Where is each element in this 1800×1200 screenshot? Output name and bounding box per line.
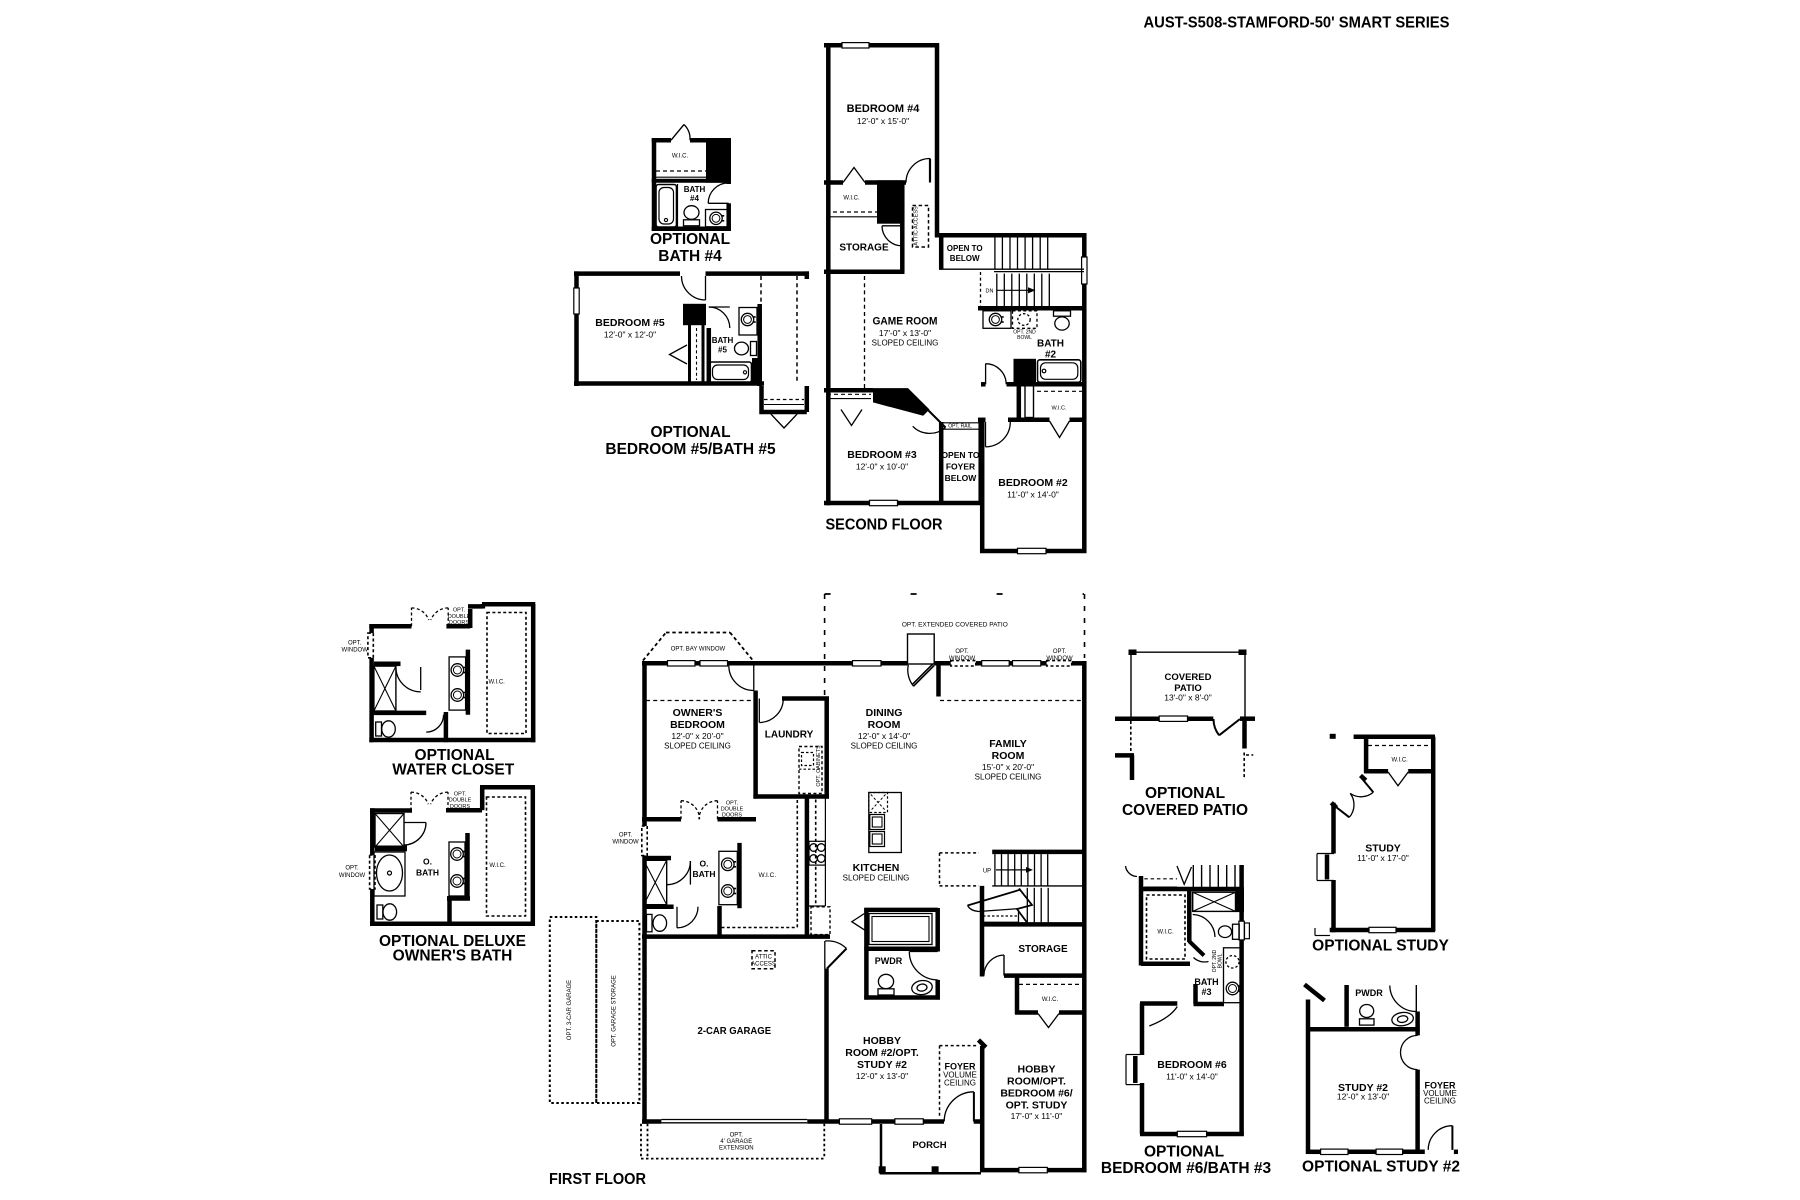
svg-text:BEDROOM #6: BEDROOM #6 xyxy=(1157,1059,1227,1071)
svg-text:BATH: BATH xyxy=(693,869,716,879)
svg-text:BEDROOM #6/: BEDROOM #6/ xyxy=(1000,1088,1072,1100)
svg-text:BOWL: BOWL xyxy=(1017,335,1032,341)
svg-text:BATH: BATH xyxy=(1037,339,1064,350)
svg-text:DOORS: DOORS xyxy=(722,813,743,819)
svg-text:BEDROOM #2: BEDROOM #2 xyxy=(998,477,1068,489)
svg-text:BELOW: BELOW xyxy=(945,473,978,483)
svg-text:OPT. STUDY: OPT. STUDY xyxy=(1006,1100,1068,1112)
svg-text:SECOND FLOOR: SECOND FLOOR xyxy=(826,517,943,534)
svg-text:12'-0" x 14'-0": 12'-0" x 14'-0" xyxy=(858,731,910,741)
svg-text:UP: UP xyxy=(983,868,991,874)
svg-text:HOBBY: HOBBY xyxy=(1018,1064,1056,1076)
svg-text:OPT. 3-CAR GARAGE: OPT. 3-CAR GARAGE xyxy=(567,980,573,1040)
svg-text:ROOM #2/OPT.: ROOM #2/OPT. xyxy=(845,1047,919,1059)
svg-text:W.I.C.: W.I.C. xyxy=(758,872,776,879)
svg-text:WINDOW: WINDOW xyxy=(342,648,369,654)
svg-text:BATH: BATH xyxy=(712,336,734,345)
svg-text:W.I.C.: W.I.C. xyxy=(1042,997,1059,1003)
svg-text:CEILING: CEILING xyxy=(1424,1097,1456,1106)
svg-text:OPT. RAIL: OPT. RAIL xyxy=(948,424,972,430)
svg-text:BEDROOM: BEDROOM xyxy=(670,719,725,731)
svg-text:BEDROOM #5/BATH #5: BEDROOM #5/BATH #5 xyxy=(605,441,776,458)
svg-text:2-CAR GARAGE: 2-CAR GARAGE xyxy=(698,1025,772,1037)
svg-text:12'-0" x 13'-0": 12'-0" x 13'-0" xyxy=(1337,1092,1389,1102)
svg-text:12'-0" x 13'-0": 12'-0" x 13'-0" xyxy=(856,1071,908,1081)
svg-text:OPT. CABINETS: OPT. CABINETS xyxy=(816,745,822,787)
svg-text:OPTIONAL: OPTIONAL xyxy=(650,231,730,248)
svg-text:OPT.: OPT. xyxy=(1053,649,1067,655)
svg-text:STORAGE: STORAGE xyxy=(1018,944,1068,955)
svg-text:OPT.: OPT. xyxy=(454,791,467,797)
svg-text:12'-0" x 12'-0": 12'-0" x 12'-0" xyxy=(604,330,656,340)
svg-text:SLOPED CEILING: SLOPED CEILING xyxy=(664,742,731,751)
svg-text:PORCH: PORCH xyxy=(912,1140,946,1151)
svg-text:W.I.C.: W.I.C. xyxy=(1392,758,1409,764)
svg-text:W.I.C.: W.I.C. xyxy=(489,863,506,869)
svg-text:OPT.: OPT. xyxy=(348,641,362,647)
svg-text:BEDROOM #5: BEDROOM #5 xyxy=(595,317,665,329)
svg-text:11'-0" x 17'-0": 11'-0" x 17'-0" xyxy=(1357,853,1409,863)
svg-text:OPT. GARAGE STORAGE: OPT. GARAGE STORAGE xyxy=(612,975,618,1047)
svg-text:WINDOW: WINDOW xyxy=(949,656,976,662)
svg-text:#2: #2 xyxy=(1045,350,1057,361)
svg-text:GAME ROOM: GAME ROOM xyxy=(873,316,938,328)
svg-text:W.I.C.: W.I.C. xyxy=(1052,406,1067,412)
svg-text:HOBBY: HOBBY xyxy=(863,1035,901,1047)
svg-text:SLOPED CEILING: SLOPED CEILING xyxy=(872,339,939,348)
svg-text:OPT. BAY WINDOW: OPT. BAY WINDOW xyxy=(671,647,726,653)
svg-text:17'-0" x 11'-0": 17'-0" x 11'-0" xyxy=(1011,1111,1063,1121)
svg-text:OPT.: OPT. xyxy=(345,866,359,872)
svg-text:CEILING: CEILING xyxy=(944,1079,976,1088)
svg-text:OWNER'S: OWNER'S xyxy=(673,707,723,719)
svg-text:13'-0" x 8'-0": 13'-0" x 8'-0" xyxy=(1164,693,1212,703)
svg-text:SLOPED CEILING: SLOPED CEILING xyxy=(843,874,910,883)
svg-text:PWDR: PWDR xyxy=(875,956,903,966)
svg-text:WINDOW: WINDOW xyxy=(612,840,639,846)
svg-text:DINING: DINING xyxy=(866,707,903,719)
svg-text:ACCESS: ACCESS xyxy=(751,962,776,968)
svg-text:BELOW: BELOW xyxy=(950,254,980,263)
svg-text:BATH: BATH xyxy=(1194,977,1218,987)
svg-text:OPTIONAL: OPTIONAL xyxy=(650,424,730,441)
svg-text:PWDR: PWDR xyxy=(1355,988,1383,998)
svg-text:#5: #5 xyxy=(718,346,727,355)
svg-text:COVERED PATIO: COVERED PATIO xyxy=(1122,802,1248,819)
svg-text:W.I.C.: W.I.C. xyxy=(489,680,506,686)
svg-text:COVERED: COVERED xyxy=(1165,672,1212,683)
svg-text:#3: #3 xyxy=(1201,987,1211,997)
svg-text:OPT.: OPT. xyxy=(453,608,466,614)
svg-text:OPEN TO: OPEN TO xyxy=(941,450,979,460)
svg-text:WATER CLOSET: WATER CLOSET xyxy=(392,762,515,779)
svg-text:BATH: BATH xyxy=(684,185,706,194)
svg-text:11'-0" x 14'-0": 11'-0" x 14'-0" xyxy=(1166,1072,1218,1082)
svg-text:OPTIONAL STUDY #2: OPTIONAL STUDY #2 xyxy=(1302,1159,1460,1176)
svg-text:FOYER: FOYER xyxy=(946,462,975,472)
svg-text:OPT.: OPT. xyxy=(955,649,969,655)
svg-text:BEDROOM #3: BEDROOM #3 xyxy=(847,449,917,461)
svg-text:ATTIC: ATTIC xyxy=(755,955,773,961)
svg-text:12'-0" x 15'-0": 12'-0" x 15'-0" xyxy=(857,116,909,126)
svg-text:BEDROOM #4: BEDROOM #4 xyxy=(847,103,921,115)
svg-text:STORAGE: STORAGE xyxy=(839,243,889,254)
svg-text:SLOPED CEILING: SLOPED CEILING xyxy=(851,742,918,751)
svg-text:BATH #4: BATH #4 xyxy=(658,248,722,265)
svg-text:O.: O. xyxy=(700,859,709,869)
svg-text:FIRST FLOOR: FIRST FLOOR xyxy=(549,1171,646,1188)
svg-text:ROOM/OPT.: ROOM/OPT. xyxy=(1007,1076,1066,1088)
svg-text:O.: O. xyxy=(423,857,432,867)
svg-text:BATH: BATH xyxy=(416,868,439,878)
svg-text:WINDOW: WINDOW xyxy=(339,873,366,879)
svg-text:DN: DN xyxy=(986,289,994,295)
svg-text:ROOM: ROOM xyxy=(992,750,1025,762)
svg-text:LAUNDRY: LAUNDRY xyxy=(765,730,814,741)
svg-text:AUST-S508-STAMFORD-50' SMART S: AUST-S508-STAMFORD-50' SMART SERIES xyxy=(1144,15,1450,32)
svg-text:OWNER'S BATH: OWNER'S BATH xyxy=(393,948,513,965)
svg-text:OPT.: OPT. xyxy=(726,801,739,807)
svg-text:OPTIONAL: OPTIONAL xyxy=(1145,785,1225,802)
svg-text:11'-0" x 14'-0": 11'-0" x 14'-0" xyxy=(1007,490,1059,500)
svg-text:WINDOW: WINDOW xyxy=(1046,656,1073,662)
svg-text:DOUBLE: DOUBLE xyxy=(448,614,471,620)
svg-text:17'-0" x 13'-0": 17'-0" x 13'-0" xyxy=(879,328,931,338)
svg-text:OPTIONAL: OPTIONAL xyxy=(1144,1144,1224,1161)
svg-text:BEDROOM #6/BATH #3: BEDROOM #6/BATH #3 xyxy=(1101,1160,1272,1177)
svg-text:W.I.C.: W.I.C. xyxy=(1157,930,1174,936)
svg-text:KITCHEN: KITCHEN xyxy=(853,862,900,874)
svg-text:W.I.C.: W.I.C. xyxy=(843,196,860,202)
svg-text:DOUBLE: DOUBLE xyxy=(449,798,472,804)
svg-text:15'-0" x 20'-0": 15'-0" x 20'-0" xyxy=(982,762,1034,772)
svg-text:ATTIC ACCESS: ATTIC ACCESS xyxy=(914,206,920,246)
svg-text:OPTIONAL STUDY: OPTIONAL STUDY xyxy=(1312,938,1449,955)
svg-text:ROOM: ROOM xyxy=(868,719,901,731)
svg-text:FAMILY: FAMILY xyxy=(989,738,1027,750)
svg-text:W.I.C.: W.I.C. xyxy=(672,154,689,160)
svg-text:OPT. EXTENDED COVERED PATIO: OPT. EXTENDED COVERED PATIO xyxy=(902,622,1008,629)
svg-text:OPT.: OPT. xyxy=(619,833,633,839)
svg-text:STUDY #2: STUDY #2 xyxy=(857,1059,907,1071)
svg-text:SLOPED CEILING: SLOPED CEILING xyxy=(975,773,1042,782)
svg-text:4' GARAGE: 4' GARAGE xyxy=(720,1139,752,1145)
svg-text:EXTENSION: EXTENSION xyxy=(719,1146,754,1152)
svg-text:BOWL: BOWL xyxy=(1218,953,1224,968)
svg-text:OPT.: OPT. xyxy=(730,1133,744,1139)
svg-text:#4: #4 xyxy=(690,194,699,203)
svg-text:12'-0" x 20'-0": 12'-0" x 20'-0" xyxy=(671,731,723,741)
svg-text:12'-0" x 10'-0": 12'-0" x 10'-0" xyxy=(856,462,908,472)
svg-text:OPEN TO: OPEN TO xyxy=(947,244,983,253)
